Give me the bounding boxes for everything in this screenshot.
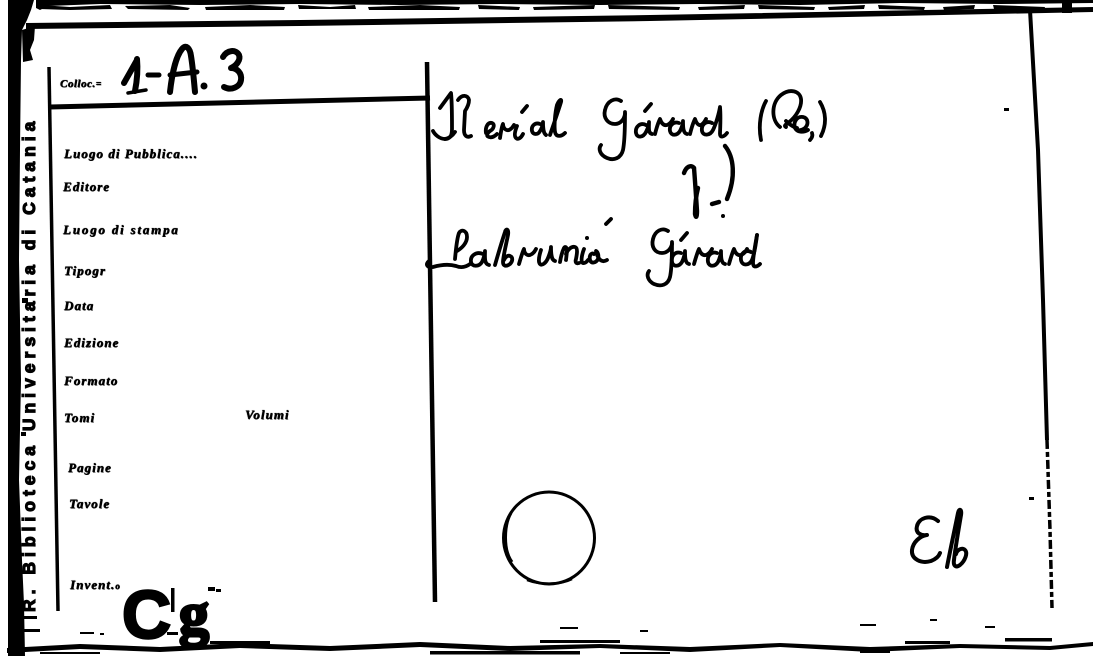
svg-text:g: g bbox=[179, 581, 209, 647]
svg-text:C: C bbox=[122, 577, 171, 653]
svg-text:R. Biblioteca Universitaria di: R. Biblioteca Universitaria di Catania bbox=[19, 117, 39, 612]
